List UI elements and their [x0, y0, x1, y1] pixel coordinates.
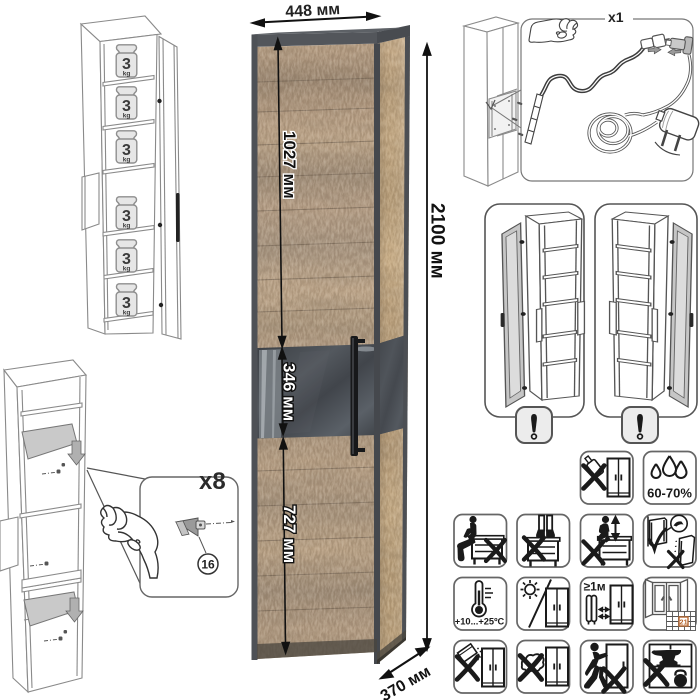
svg-text:≥1м: ≥1м — [584, 580, 606, 594]
svg-text:60-70%: 60-70% — [647, 486, 692, 501]
svg-text:+10...+25ºC: +10...+25ºC — [455, 617, 505, 627]
svg-text:21: 21 — [679, 618, 687, 627]
